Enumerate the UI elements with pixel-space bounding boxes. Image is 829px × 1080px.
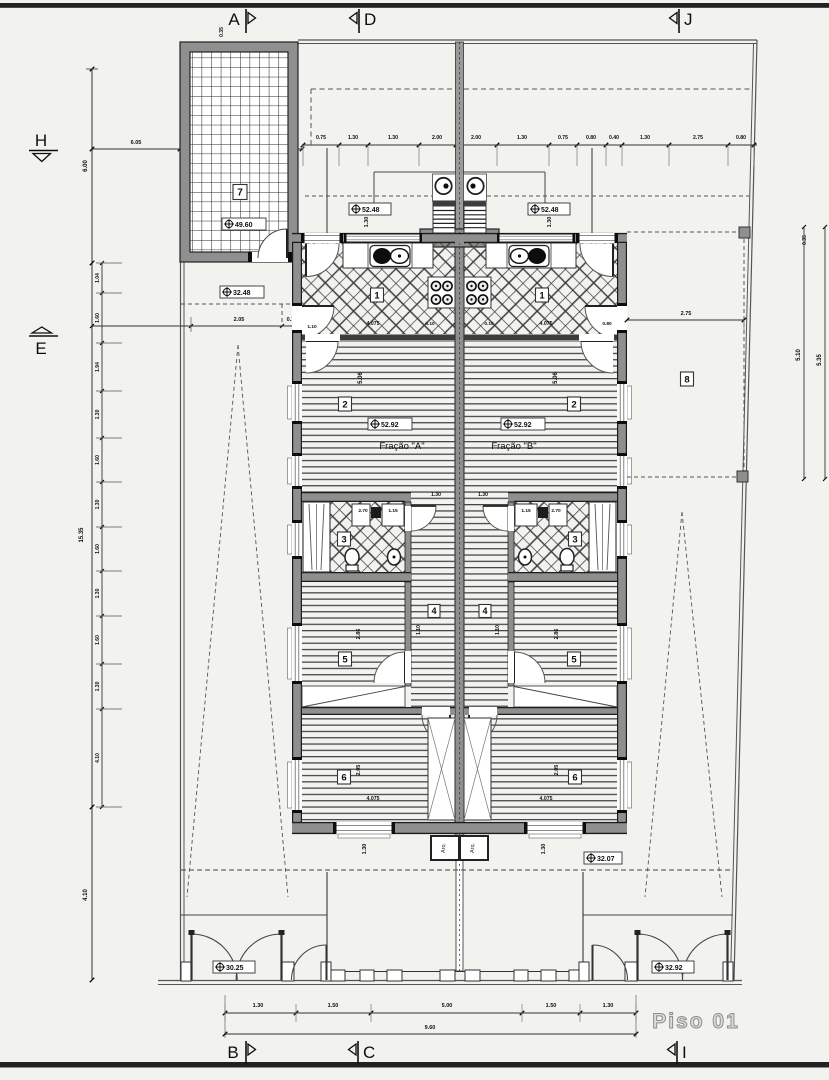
svg-text:1.30: 1.30 — [603, 1003, 614, 1009]
svg-text:1.30: 1.30 — [95, 409, 101, 419]
svg-text:1.30: 1.30 — [541, 844, 547, 855]
svg-text:4.075: 4.075 — [540, 321, 553, 327]
svg-text:1: 1 — [539, 290, 545, 301]
svg-text:1.60: 1.60 — [95, 635, 101, 645]
svg-text:52.48: 52.48 — [362, 207, 380, 214]
svg-text:1.30: 1.30 — [348, 135, 358, 141]
svg-text:4.10: 4.10 — [83, 889, 89, 901]
svg-text:1.30: 1.30 — [253, 1003, 264, 1009]
svg-text:2: 2 — [571, 399, 576, 410]
svg-text:1.60: 1.60 — [95, 544, 101, 554]
svg-text:0.35: 0.35 — [219, 27, 225, 37]
svg-text:9.60: 9.60 — [425, 1025, 436, 1031]
svg-text:B: B — [227, 1043, 238, 1062]
svg-text:0.75: 0.75 — [558, 135, 568, 141]
svg-text:2.75: 2.75 — [693, 135, 703, 141]
svg-text:52.92: 52.92 — [514, 422, 532, 429]
svg-text:0.10: 0.10 — [484, 321, 494, 327]
svg-text:0.75: 0.75 — [316, 135, 326, 141]
svg-text:2.05: 2.05 — [356, 765, 362, 776]
svg-text:1.30: 1.30 — [547, 217, 553, 228]
svg-text:1.30: 1.30 — [640, 135, 650, 141]
svg-text:2.86: 2.86 — [554, 629, 560, 640]
svg-text:C: C — [363, 1043, 375, 1062]
svg-text:1.60: 1.60 — [95, 313, 101, 323]
svg-text:6: 6 — [572, 772, 577, 783]
svg-text:1.30: 1.30 — [95, 681, 101, 691]
svg-text:1.50: 1.50 — [546, 1003, 557, 1009]
svg-text:4.075: 4.075 — [540, 796, 553, 802]
svg-text:6: 6 — [341, 772, 346, 783]
svg-text:49.60: 49.60 — [235, 222, 253, 229]
svg-text:E: E — [35, 339, 46, 358]
svg-text:1.30: 1.30 — [388, 135, 398, 141]
svg-text:1.94: 1.94 — [95, 362, 101, 372]
svg-text:Piso 01: Piso 01 — [652, 1010, 740, 1033]
svg-text:2.05: 2.05 — [234, 317, 245, 323]
svg-text:32.48: 32.48 — [233, 290, 251, 297]
svg-text:32.07: 32.07 — [597, 856, 615, 863]
svg-text:1.50: 1.50 — [328, 1003, 339, 1009]
svg-text:5.06: 5.06 — [553, 372, 559, 384]
svg-text:0.40: 0.40 — [609, 135, 619, 141]
svg-text:I: I — [682, 1043, 687, 1062]
svg-text:4.075: 4.075 — [367, 321, 380, 327]
svg-text:15.35: 15.35 — [79, 527, 85, 543]
svg-text:H: H — [35, 131, 47, 150]
svg-text:2: 2 — [342, 399, 347, 410]
svg-text:D: D — [364, 10, 376, 29]
svg-text:A: A — [228, 10, 240, 29]
svg-text:Arq.: Arq. — [441, 842, 447, 853]
svg-text:30.25: 30.25 — [226, 965, 244, 972]
svg-text:Fração "B": Fração "B" — [491, 441, 536, 452]
svg-text:2.70: 2.70 — [358, 508, 368, 514]
svg-text:6.05: 6.05 — [131, 140, 142, 146]
svg-text:1: 1 — [374, 290, 380, 301]
svg-text:1.30: 1.30 — [95, 588, 101, 598]
svg-text:1.10: 1.10 — [416, 625, 422, 635]
svg-text:1.30: 1.30 — [517, 135, 527, 141]
svg-text:5.06: 5.06 — [358, 372, 364, 384]
svg-text:5.10: 5.10 — [796, 349, 802, 361]
svg-text:4: 4 — [431, 606, 436, 616]
svg-text:0.10: 0.10 — [425, 321, 435, 327]
svg-text:2.75: 2.75 — [681, 311, 692, 317]
svg-text:3: 3 — [572, 534, 577, 545]
svg-text:7: 7 — [237, 188, 243, 199]
svg-text:0.80: 0.80 — [736, 135, 746, 141]
svg-text:1.30: 1.30 — [478, 492, 488, 498]
svg-text:5.00: 5.00 — [442, 1003, 453, 1009]
svg-text:52.92: 52.92 — [381, 422, 399, 429]
svg-text:2.00: 2.00 — [471, 135, 481, 141]
svg-text:4: 4 — [482, 606, 487, 616]
svg-text:2.05: 2.05 — [554, 765, 560, 776]
svg-text:2.00: 2.00 — [432, 135, 442, 141]
svg-text:8: 8 — [684, 374, 689, 385]
svg-text:32.92: 32.92 — [665, 965, 683, 972]
svg-text:6.00: 6.00 — [83, 160, 89, 172]
svg-text:1.30: 1.30 — [431, 492, 441, 498]
svg-text:5: 5 — [571, 654, 577, 665]
svg-text:4.10: 4.10 — [95, 753, 101, 763]
svg-text:1.30: 1.30 — [362, 844, 368, 855]
svg-text:5.35: 5.35 — [817, 354, 823, 366]
svg-text:52.48: 52.48 — [541, 207, 559, 214]
svg-text:Fração "A": Fração "A" — [379, 441, 424, 452]
svg-text:0.35: 0.35 — [802, 235, 808, 245]
svg-text:1.15: 1.15 — [388, 508, 398, 514]
svg-text:2.86: 2.86 — [356, 629, 362, 640]
svg-text:1.10: 1.10 — [307, 324, 317, 330]
svg-text:1.30: 1.30 — [95, 499, 101, 509]
svg-text:1.15: 1.15 — [521, 508, 531, 514]
svg-text:3: 3 — [341, 534, 346, 545]
svg-text:1.30: 1.30 — [364, 217, 370, 228]
svg-text:0.80: 0.80 — [602, 321, 612, 327]
svg-text:5: 5 — [342, 654, 348, 665]
svg-text:1.10: 1.10 — [495, 625, 501, 635]
svg-text:2.70: 2.70 — [551, 508, 561, 514]
svg-text:1.60: 1.60 — [95, 455, 101, 465]
svg-text:1.04: 1.04 — [95, 273, 101, 283]
svg-text:4.075: 4.075 — [367, 796, 380, 802]
svg-text:Arq.: Arq. — [470, 842, 476, 853]
svg-text:0.80: 0.80 — [586, 135, 596, 141]
svg-text:J: J — [684, 10, 693, 29]
